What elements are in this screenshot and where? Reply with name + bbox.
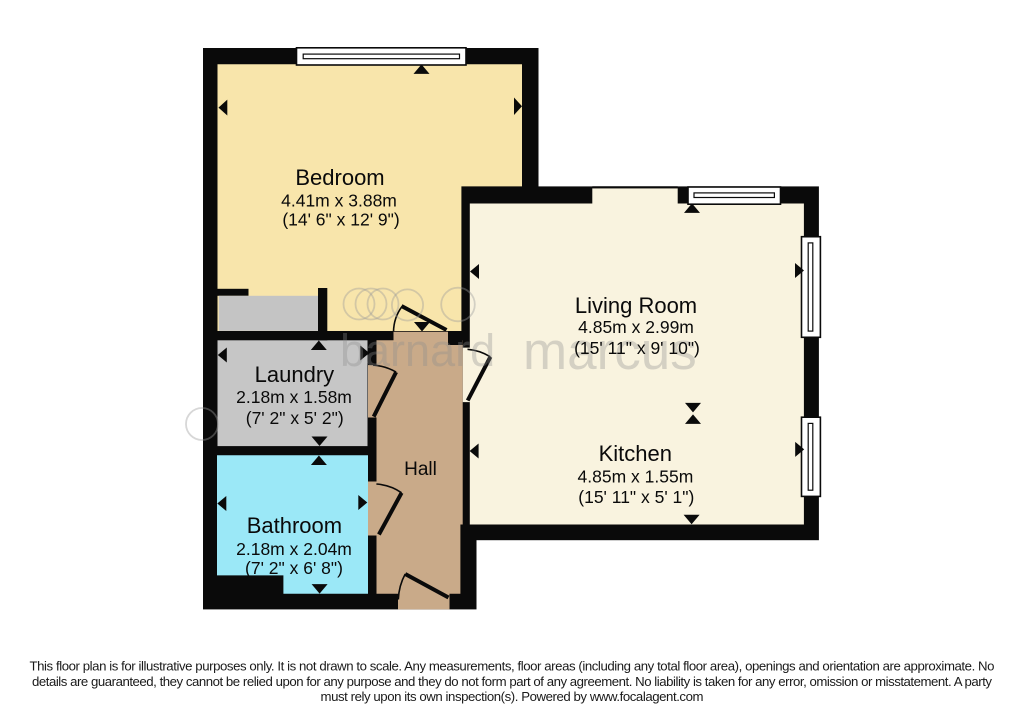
- svg-text:4.85m x 2.99m: 4.85m x 2.99m: [578, 317, 694, 337]
- svg-text:2.18m x 1.58m: 2.18m x 1.58m: [236, 387, 352, 407]
- svg-text:(7' 2" x 5' 2"): (7' 2" x 5' 2"): [246, 408, 344, 428]
- svg-text:(14' 6" x 12' 9"): (14' 6" x 12' 9"): [282, 210, 399, 230]
- svg-text:must rely upon its own inspect: must rely upon its own inspection(s). Po…: [321, 689, 704, 704]
- svg-text:Living Room: Living Room: [575, 293, 697, 318]
- svg-text:4.85m x 1.55m: 4.85m x 1.55m: [578, 467, 694, 487]
- svg-text:barnard: barnard: [340, 325, 495, 376]
- svg-text:4.41m x 3.88m: 4.41m x 3.88m: [281, 190, 397, 210]
- svg-text:Hall: Hall: [404, 459, 437, 480]
- svg-text:Laundry: Laundry: [255, 362, 335, 387]
- svg-text:2.18m x 2.04m: 2.18m x 2.04m: [236, 539, 352, 559]
- svg-text:Kitchen: Kitchen: [599, 441, 672, 466]
- svg-text:(15' 11" x 9' 10"): (15' 11" x 9' 10"): [574, 338, 700, 358]
- svg-text:Bedroom: Bedroom: [295, 165, 384, 190]
- svg-text:details are guaranteed, they c: details are guaranteed, they cannot be r…: [32, 674, 992, 689]
- svg-text:(15' 11" x 5' 1"): (15' 11" x 5' 1"): [578, 487, 694, 507]
- svg-text:This floor plan is for illustr: This floor plan is for illustrative purp…: [30, 659, 995, 674]
- svg-text:Bathroom: Bathroom: [247, 513, 342, 538]
- svg-text:(7' 2" x 6' 8"): (7' 2" x 6' 8"): [245, 558, 343, 578]
